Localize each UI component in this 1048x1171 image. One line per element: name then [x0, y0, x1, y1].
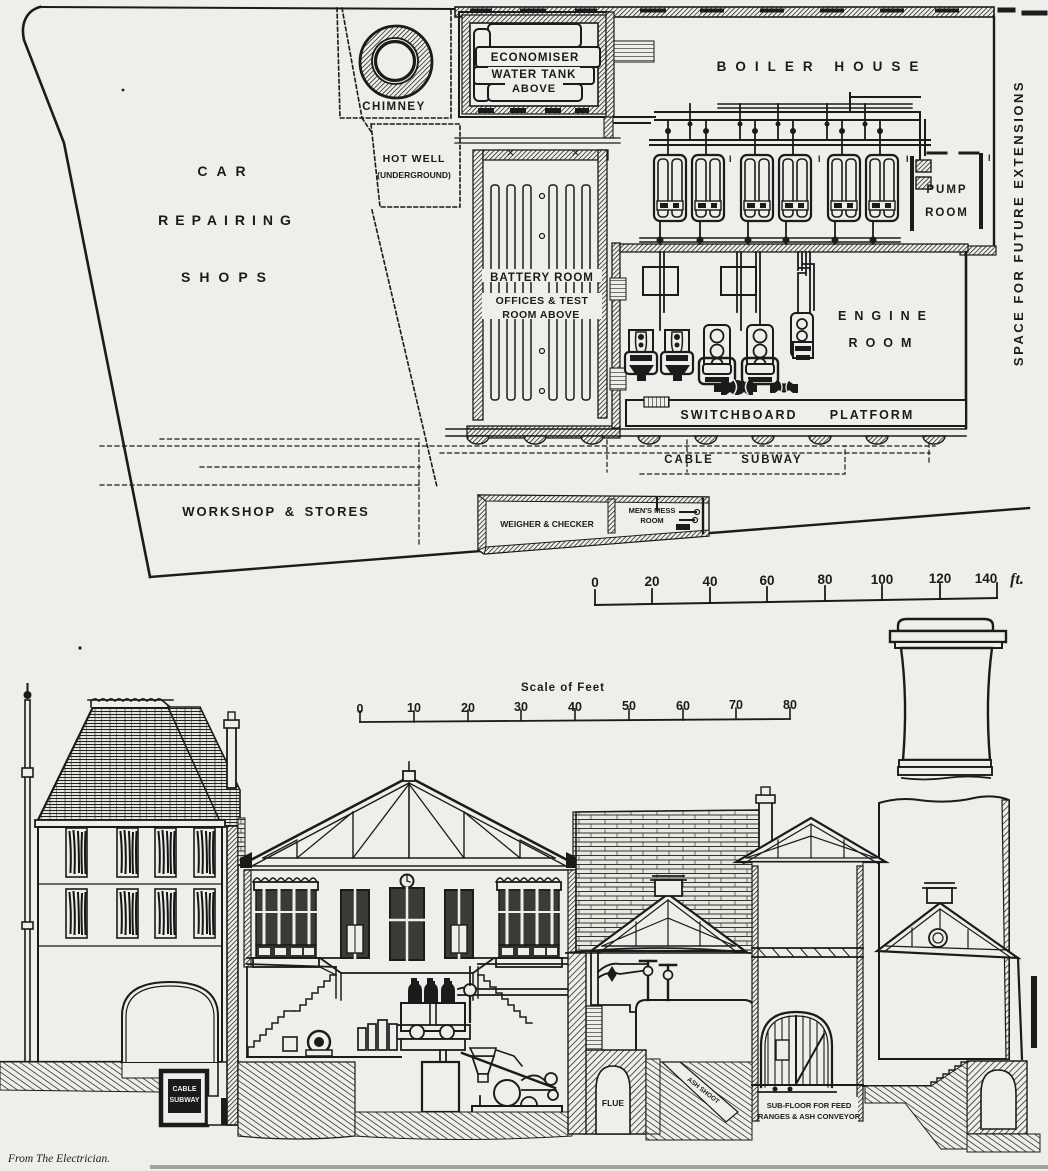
svg-text:HOT WELL: HOT WELL	[383, 153, 446, 165]
svg-text:ABOVE: ABOVE	[512, 83, 556, 95]
svg-text:RANGES & ASH CONVEYOR: RANGES & ASH CONVEYOR	[758, 1112, 861, 1121]
svg-text:REPAIRING: REPAIRING	[158, 212, 298, 228]
svg-text:ECONOMISER: ECONOMISER	[491, 52, 580, 64]
svg-text:I: I	[729, 154, 732, 164]
svg-text:Scale of Feet: Scale of Feet	[521, 682, 605, 694]
svg-text:ROOM: ROOM	[925, 207, 969, 219]
svg-text:WORKSHOP & STORES: WORKSHOP & STORES	[182, 504, 370, 519]
svg-text:I: I	[818, 154, 821, 164]
svg-text:SUBWAY: SUBWAY	[169, 1097, 199, 1104]
svg-text:I: I	[988, 153, 991, 163]
svg-text:50: 50	[622, 699, 636, 713]
svg-text:CABLE: CABLE	[172, 1086, 196, 1093]
svg-text:PLATFORM: PLATFORM	[830, 408, 915, 422]
svg-text:ROOM: ROOM	[640, 516, 663, 525]
svg-text:CHIMNEY: CHIMNEY	[362, 101, 426, 113]
svg-text:ft.: ft.	[1010, 571, 1024, 588]
svg-text:SPACE FOR FUTURE EXTENSIONS: SPACE FOR FUTURE EXTENSIONS	[1011, 80, 1026, 366]
svg-text:(UNDERGROUND): (UNDERGROUND)	[377, 170, 451, 180]
svg-text:100: 100	[871, 572, 894, 587]
svg-text:ENGINE: ENGINE	[838, 309, 934, 323]
svg-text:SHOPS: SHOPS	[181, 269, 275, 285]
svg-text:MEN'S MESS: MEN'S MESS	[629, 506, 676, 515]
svg-text:CABLE: CABLE	[664, 454, 714, 466]
svg-text:WEIGHER & CHECKER: WEIGHER & CHECKER	[500, 519, 594, 529]
svg-text:0: 0	[357, 702, 364, 716]
svg-text:120: 120	[929, 571, 952, 586]
svg-text:80: 80	[817, 572, 832, 587]
svg-text:40: 40	[568, 700, 582, 714]
svg-text:SUBWAY: SUBWAY	[741, 454, 802, 466]
svg-text:10: 10	[407, 701, 421, 715]
svg-text:60: 60	[676, 699, 690, 713]
svg-text:20: 20	[644, 574, 659, 589]
svg-text:40: 40	[702, 574, 717, 589]
svg-text:20: 20	[461, 701, 475, 715]
svg-text:BATTERY ROOM: BATTERY ROOM	[490, 272, 594, 284]
svg-text:BOILER HOUSE: BOILER HOUSE	[717, 59, 928, 74]
svg-text:SWITCHBOARD: SWITCHBOARD	[680, 408, 797, 422]
svg-text:From The Electrician.: From The Electrician.	[7, 1153, 110, 1165]
svg-text:70: 70	[729, 698, 743, 712]
svg-text:30: 30	[514, 700, 528, 714]
svg-text:60: 60	[759, 573, 774, 588]
svg-text:140: 140	[975, 571, 998, 586]
svg-text:0: 0	[591, 575, 599, 590]
svg-text:FLUE: FLUE	[602, 1098, 625, 1108]
svg-text:PUMP: PUMP	[926, 184, 967, 196]
svg-text:ROOM ABOVE: ROOM ABOVE	[502, 309, 580, 321]
svg-text:80: 80	[783, 698, 797, 712]
svg-text:WATER TANK: WATER TANK	[492, 69, 577, 81]
svg-text:CAR: CAR	[197, 163, 254, 179]
svg-text:I: I	[906, 154, 909, 164]
svg-text:OFFICES & TEST: OFFICES & TEST	[496, 295, 589, 307]
svg-text:ROOM: ROOM	[849, 336, 920, 350]
svg-text:SUB-FLOOR FOR FEED: SUB-FLOOR FOR FEED	[767, 1101, 852, 1110]
